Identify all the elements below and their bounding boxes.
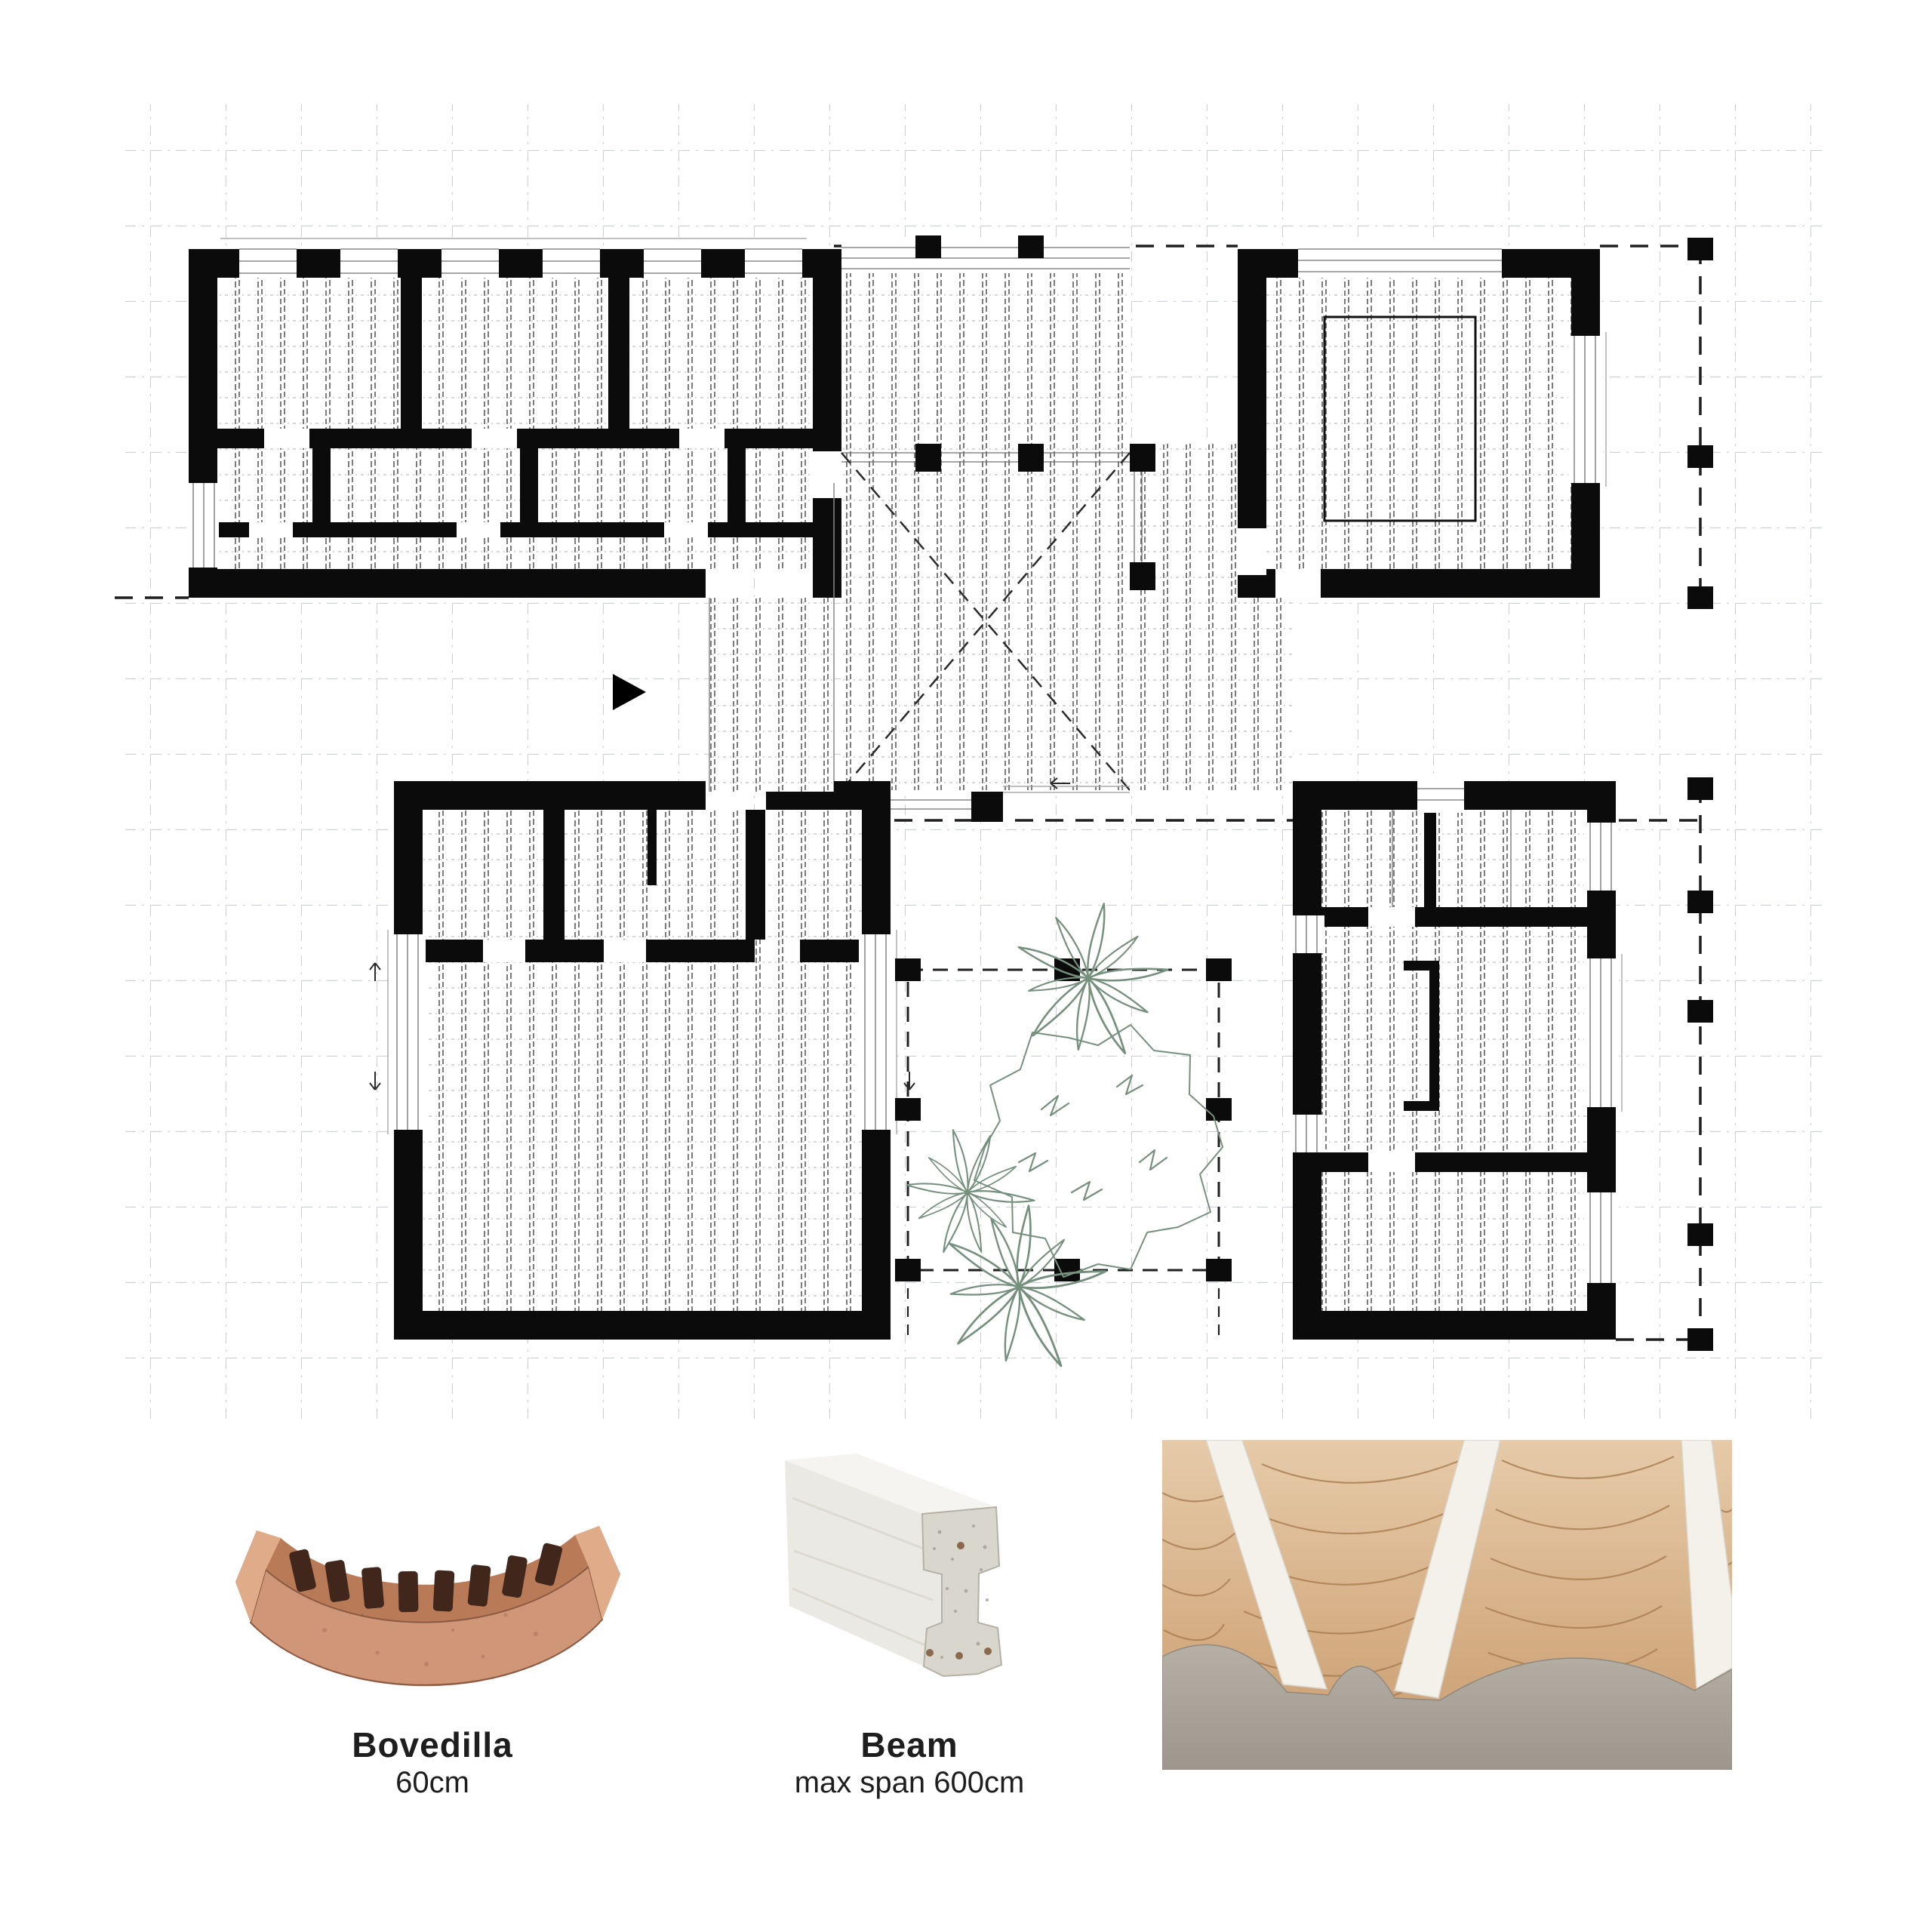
central-hall — [834, 237, 1130, 822]
west-window — [187, 483, 219, 568]
door-to-hall — [813, 451, 841, 498]
architectural-sheet: Bovedilla 60cm Beam max span 600cm — [0, 0, 1932, 1932]
bovedilla-title: Bovedilla — [236, 1725, 629, 1764]
east-window — [1568, 332, 1606, 487]
bovedilla-caption: Bovedilla 60cm — [236, 1725, 629, 1801]
floor-plan-drawing — [0, 0, 1932, 1932]
north-east-block — [1238, 243, 1606, 598]
beam-subtitle: max span 600cm — [713, 1764, 1106, 1801]
south-west-block — [370, 781, 915, 1340]
north-window — [1298, 243, 1502, 278]
beam-title: Beam — [713, 1725, 1106, 1764]
south-east-block — [1290, 778, 1622, 1340]
north-west-block — [187, 238, 841, 598]
ceiling-photo — [1162, 1440, 1732, 1770]
bovedilla-subtitle: 60cm — [236, 1764, 629, 1801]
beam-caption: Beam max span 600cm — [713, 1725, 1106, 1801]
